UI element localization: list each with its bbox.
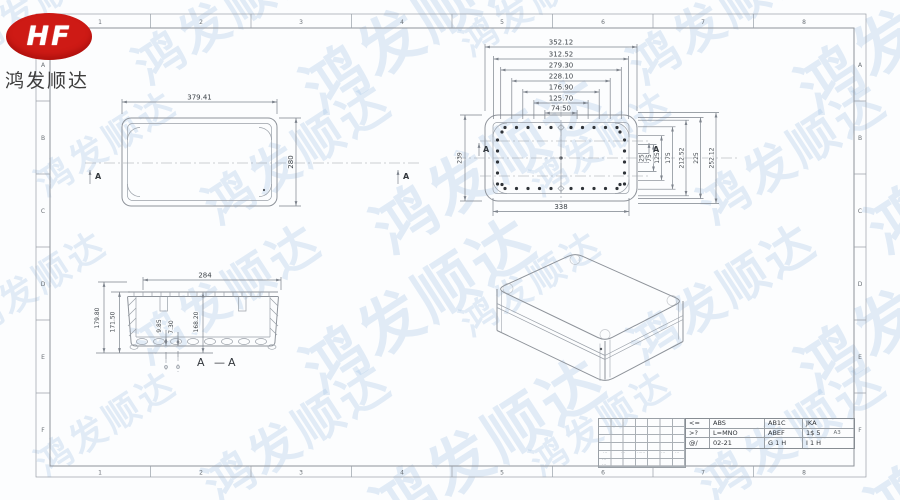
tb-code-2: ABEF — [765, 429, 803, 439]
zone-row-label: B — [41, 135, 45, 142]
section-arrow-label: A — [483, 145, 490, 154]
view-base-plan: A A 352.12 312.52 279.30 228.10 176.90 1… — [455, 39, 738, 217]
zone-row-label: D — [858, 281, 863, 288]
dim-label: 7.30 — [168, 320, 175, 334]
tb-material: ABS — [710, 419, 765, 429]
zone-col-label: 2 — [199, 470, 203, 477]
dim-label: 352.12 — [549, 39, 574, 47]
zone-row-label: A — [858, 62, 863, 69]
tb-sheet-size: A3 — [833, 430, 840, 436]
zone-col-label: 6 — [601, 470, 605, 477]
company-logo: HF — [6, 13, 92, 60]
tb-symbol: <= — [686, 419, 710, 429]
zone-col-label: 5 — [500, 470, 504, 477]
zone-col-label: 6 — [601, 19, 605, 26]
dim-label: 75 — [646, 154, 653, 162]
zone-col-label: 7 — [701, 470, 705, 477]
zone-row-label: D — [41, 281, 46, 288]
revision-mark: ⋯ — [621, 451, 625, 455]
tb-sheet-i: I 1 H — [803, 438, 854, 448]
dim-label: 9.85 — [156, 319, 163, 333]
dim-label: 168.20 — [193, 311, 200, 332]
revision-mark: ⋯ — [603, 451, 607, 455]
zone-row-label: C — [858, 208, 862, 215]
tb-scale: 1$ 5 — [806, 429, 820, 437]
dim-label: 280 — [287, 155, 295, 168]
title-block-main: <= ABS AB1C JKA >? L=MNO ABEF 1$ 5 A3 @/… — [685, 418, 855, 449]
zone-row-label: E — [41, 354, 45, 361]
view-isometric — [497, 255, 683, 382]
sheet-frame: 1 2 3 4 5 6 7 8 1 2 3 4 5 6 7 8 A B C D … — [36, 14, 866, 477]
dim-label: 338 — [554, 203, 567, 211]
dim-label: 171.50 — [110, 311, 117, 332]
title-block: ⋯ ⋯ ⋯⋯ ⋯ ⋯ ⋯ ⋯ <= ABS AB1C JKA >? L=MNO … — [598, 418, 854, 466]
view-lid-plan: A A 379.41 280 — [85, 94, 420, 207]
revision-mark: ⋯ — [602, 463, 606, 467]
tb-code-1: AB1C — [765, 419, 803, 429]
company-name: 鸿发顺达 — [5, 66, 89, 93]
tb-scale-sheet: 1$ 5 A3 — [803, 429, 854, 439]
dim-label: 179.80 — [94, 307, 101, 328]
dim-label: 225 — [693, 152, 700, 164]
tb-date: 02-21 — [710, 438, 765, 448]
tb-name: JKA — [803, 419, 854, 429]
zone-col-label: 3 — [299, 19, 303, 26]
zone-row-label: C — [41, 208, 45, 215]
tb-spec: L=MNO — [710, 429, 765, 439]
dim-label: 239 — [457, 152, 464, 164]
tb-symbol: @/ — [686, 438, 710, 448]
tb-sheet-g: G 1 H — [765, 438, 803, 448]
zone-col-label: 1 — [98, 470, 102, 477]
dim-label: 284 — [198, 272, 212, 280]
revision-grid: ⋯ ⋯ ⋯⋯ ⋯ ⋯ ⋯ ⋯ — [598, 418, 686, 468]
dim-label: 212.52 — [679, 147, 686, 168]
dim-label: 125.70 — [549, 95, 574, 103]
drawing-sheet: 鸿发顺达鸿发顺达鸿发顺达鸿发顺达鸿发顺达鸿发顺达鸿发顺达鸿发顺达鸿发顺达鸿发顺达… — [0, 0, 900, 500]
view-section-aa: 284 179.80 171.50 9.85 7.30 168.20 A —A — [94, 272, 281, 373]
dim-label: 25 — [639, 154, 646, 162]
zone-col-label: 5 — [500, 19, 504, 26]
tb-symbol: >? — [686, 429, 710, 439]
dim-label: 252.12 — [709, 147, 716, 168]
section-arrow-label: A — [403, 172, 410, 181]
dim-label: 379.41 — [187, 94, 212, 102]
dim-label: 176.90 — [549, 84, 574, 92]
revision-mark: ⋯ — [675, 451, 679, 455]
dim-label: 228.10 — [549, 73, 574, 81]
zone-col-label: 7 — [701, 19, 705, 26]
dim-label: 312.52 — [549, 51, 574, 59]
zone-col-label: 8 — [802, 470, 806, 477]
dim-label: 125 — [654, 152, 661, 164]
zone-row-label: E — [858, 354, 862, 361]
zone-row-label: B — [858, 135, 862, 142]
zone-col-label: 4 — [400, 19, 404, 26]
section-arrow-label: A — [95, 172, 102, 181]
section-view-label: A —A — [197, 356, 239, 369]
dim-label: 175 — [665, 152, 672, 164]
revision-mark: ⋯⋯ — [637, 451, 645, 455]
zone-col-label: 8 — [802, 19, 806, 26]
dim-label: 279.30 — [549, 62, 574, 70]
revision-mark: ⋯ — [661, 451, 665, 455]
zone-col-label: 2 — [199, 19, 203, 26]
zone-row-label: F — [41, 427, 45, 434]
dim-label: 74.50 — [551, 105, 571, 113]
logo-hf-text: HF — [26, 21, 71, 52]
zone-col-label: 4 — [400, 470, 404, 477]
zone-col-label: 3 — [299, 470, 303, 477]
zone-row-label: F — [858, 427, 862, 434]
zone-col-label: 1 — [98, 19, 102, 26]
